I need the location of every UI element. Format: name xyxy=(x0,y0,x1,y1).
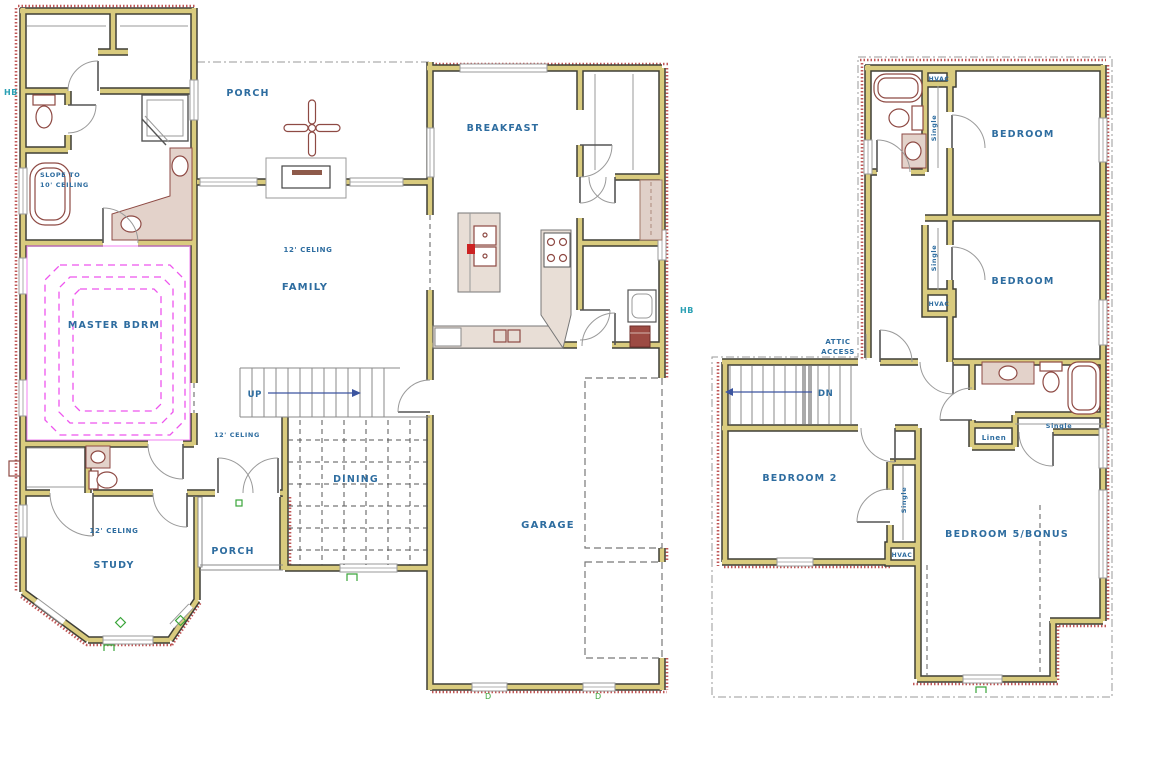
master-bedroom-label: MASTER BDRM xyxy=(68,320,160,331)
wall-symbol xyxy=(9,461,20,476)
shower xyxy=(142,95,188,141)
floorplan-canvas: HB PORCH BREAKFAST SLOPE TO 10' CEILING … xyxy=(0,0,1154,763)
breakfast-label: BREAKFAST xyxy=(467,123,540,134)
linen-closet-label: Linen xyxy=(982,434,1007,442)
garage-door-marker: D xyxy=(595,692,601,701)
sink-bowl xyxy=(474,226,496,245)
bath1-fixtures xyxy=(874,74,926,168)
laundry-fixtures xyxy=(628,180,662,347)
slope-note-line2: 10' CEILING xyxy=(40,181,89,189)
garage-door-track xyxy=(585,562,662,658)
faucet xyxy=(467,244,475,254)
floorplan-drawing: HB PORCH BREAKFAST SLOPE TO 10' CEILING … xyxy=(0,0,1154,763)
family-ceiling-note: 12' CELING xyxy=(284,246,333,254)
study-label: STUDY xyxy=(93,560,134,571)
electrical-markers xyxy=(104,500,357,651)
brick-hatch-first-floor xyxy=(16,6,668,692)
bedroom2-label: BEDROOM 2 xyxy=(762,473,837,484)
bedroom-top-label: BEDROOM xyxy=(992,129,1055,140)
sink-bowl xyxy=(474,247,496,266)
garage-door-track xyxy=(585,378,662,548)
second-floor-plan: HVAC Single BEDROOM Single HVAC BEDROOM … xyxy=(712,57,1112,697)
bonus-room-label: BEDROOM 5/BONUS xyxy=(945,529,1069,540)
single-closet-label: Single xyxy=(1046,422,1072,430)
dining-ceiling-grid xyxy=(288,420,428,565)
family-label: FAMILY xyxy=(282,282,328,293)
toilet-tank xyxy=(33,95,55,105)
stairs-up xyxy=(240,368,430,417)
dishwasher xyxy=(435,328,461,346)
doors-second-floor xyxy=(857,115,1053,522)
slope-note-line1: SLOPE TO xyxy=(40,171,80,179)
ceiling-fan-icon xyxy=(284,100,340,156)
windows-second-floor xyxy=(777,118,1107,683)
cabinet xyxy=(630,326,650,347)
master-bath-fixtures xyxy=(30,95,192,240)
hose-bib-label: HB xyxy=(680,306,694,315)
garage-label: GARAGE xyxy=(521,520,575,531)
garage-door-marker: D xyxy=(485,692,491,701)
stairs-down-label: DN xyxy=(818,389,833,399)
single-closet-label: Single xyxy=(900,487,908,513)
range xyxy=(544,233,570,267)
bedroom-mid-label: BEDROOM xyxy=(992,276,1055,287)
hvac-mid-label: HVAC xyxy=(929,301,950,308)
master-tray-ceiling xyxy=(27,246,190,440)
study-ceiling-note: 12' CELING xyxy=(90,527,139,535)
fireplace xyxy=(266,158,346,198)
hall-ceiling-note: 12' CELING xyxy=(214,431,260,439)
hose-bib-label: HB xyxy=(4,88,18,97)
dining-label: DINING xyxy=(333,474,379,485)
hvac-top-label: HVAC xyxy=(929,76,950,83)
single-closet-label: Single xyxy=(930,245,938,271)
front-porch-walls xyxy=(198,497,283,570)
attic-access-line1: ATTIC xyxy=(825,338,850,346)
bath2-fixtures xyxy=(982,362,1100,414)
single-closet-label: Single xyxy=(930,115,938,141)
attic-access-line2: ACCESS xyxy=(821,348,855,356)
kitchen-fixtures xyxy=(433,213,571,348)
first-floor-plan: HB PORCH BREAKFAST SLOPE TO 10' CEILING … xyxy=(4,6,694,701)
porch-bottom-label: PORCH xyxy=(211,546,254,557)
porch-top-label: PORCH xyxy=(226,88,269,99)
hvac-b2-label: HVAC xyxy=(892,552,913,559)
toilet-bowl xyxy=(36,106,52,128)
electrical-marker xyxy=(976,687,986,693)
stairs-up-label: UP xyxy=(248,390,262,400)
